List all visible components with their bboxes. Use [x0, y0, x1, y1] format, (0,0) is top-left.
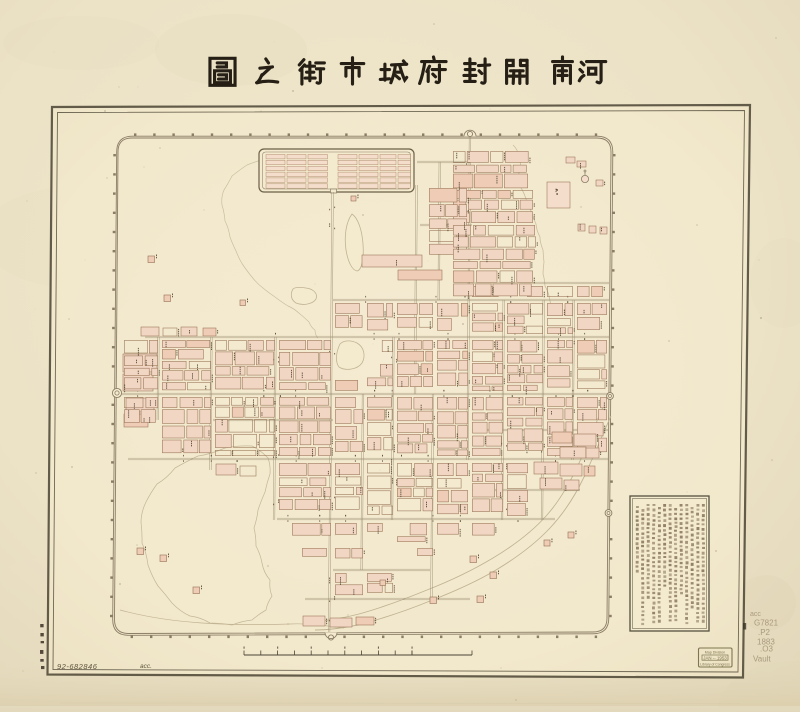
- svg-text:G7821: G7821: [754, 619, 779, 628]
- svg-text:.P2: .P2: [758, 628, 771, 637]
- svg-text:Vault: Vault: [753, 655, 771, 664]
- svg-text:92-682846: 92-682846: [57, 662, 98, 671]
- svg-text:Library of Congress: Library of Congress: [700, 662, 730, 666]
- svg-text:JAN -- 1953: JAN -- 1953: [703, 656, 727, 661]
- svg-text:Map Division: Map Division: [705, 651, 726, 655]
- svg-text:.O3: .O3: [760, 645, 773, 654]
- svg-text:acc: acc: [750, 611, 761, 618]
- svg-text:acc.: acc.: [140, 663, 152, 670]
